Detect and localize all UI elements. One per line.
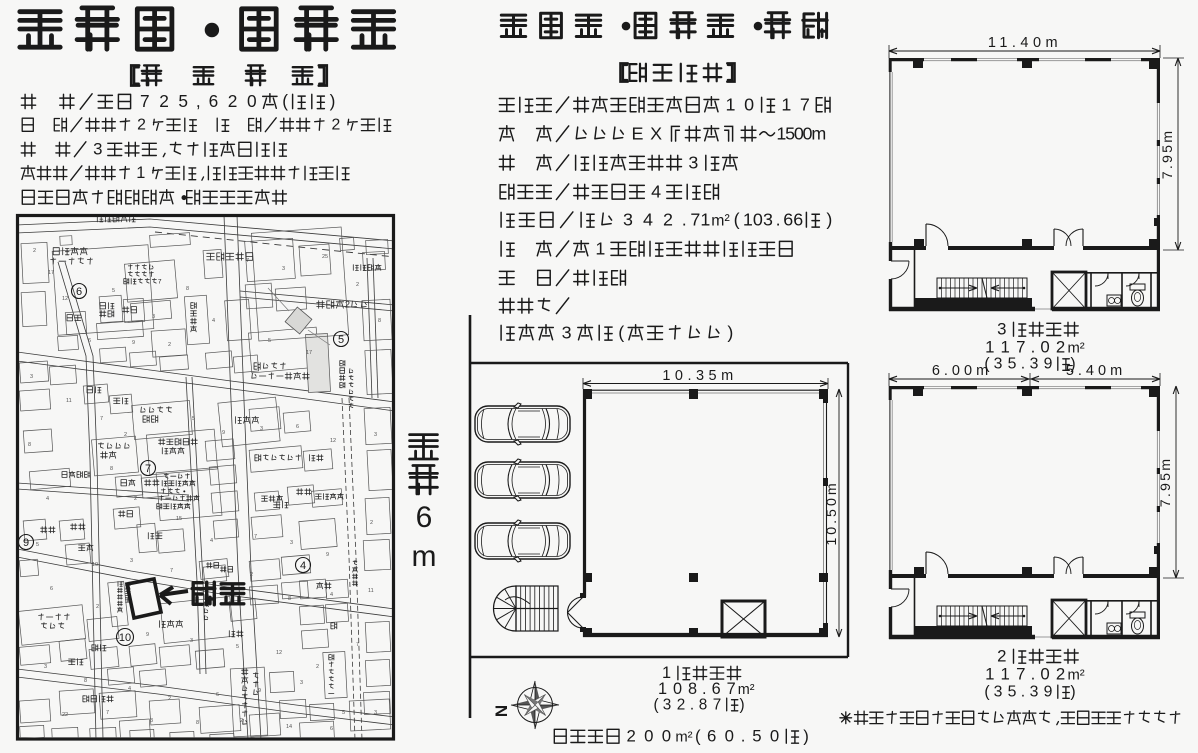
svg-text:4: 4: [210, 538, 213, 544]
svg-text:9: 9: [222, 430, 225, 436]
svg-text:6: 6: [216, 692, 219, 698]
svg-text:3: 3: [997, 320, 1006, 339]
svg-text:.: .: [1021, 684, 1025, 701]
svg-text:1: 1: [700, 209, 710, 229]
svg-text:4: 4: [212, 318, 215, 324]
svg-text:.: .: [776, 209, 781, 229]
svg-text:11: 11: [368, 588, 374, 594]
svg-text:14: 14: [286, 724, 292, 730]
svg-text:(: (: [695, 727, 701, 746]
svg-text:2: 2: [1056, 665, 1065, 684]
svg-text:6: 6: [50, 586, 53, 592]
svg-text:1: 1: [595, 238, 605, 258]
svg-text:): ): [826, 209, 832, 229]
svg-text:9: 9: [23, 537, 29, 549]
svg-text:3: 3: [994, 356, 1003, 373]
svg-text:1: 1: [985, 338, 994, 357]
svg-text:1: 1: [1001, 338, 1010, 357]
svg-text:2: 2: [250, 572, 253, 578]
svg-text:1: 1: [136, 164, 145, 182]
svg-text:2: 2: [228, 91, 238, 111]
svg-text:4: 4: [300, 560, 306, 572]
svg-text:2: 2: [997, 647, 1006, 666]
svg-text:(: (: [734, 209, 740, 229]
svg-text:22: 22: [62, 712, 68, 718]
svg-text:9: 9: [1044, 356, 1053, 373]
svg-text:8: 8: [378, 318, 381, 324]
svg-text:3: 3: [282, 266, 285, 272]
svg-text:2: 2: [137, 117, 146, 134]
svg-text:6: 6: [707, 727, 716, 746]
svg-text:5: 5: [178, 91, 188, 111]
svg-text:6: 6: [416, 501, 433, 534]
svg-text:3: 3: [663, 696, 672, 713]
svg-text:1: 1: [726, 94, 736, 114]
svg-text:5.40m: 5.40m: [1066, 363, 1126, 379]
svg-text:8: 8: [28, 442, 31, 448]
svg-text:2: 2: [356, 282, 359, 288]
svg-text:.: .: [690, 696, 694, 713]
svg-text:): ): [739, 696, 744, 713]
svg-text:8: 8: [186, 286, 189, 292]
svg-text:6: 6: [793, 209, 803, 229]
svg-text:17: 17: [306, 350, 312, 356]
svg-text:6: 6: [330, 726, 333, 732]
svg-text:7: 7: [800, 94, 810, 114]
svg-text:2: 2: [663, 209, 673, 229]
svg-text:7: 7: [106, 710, 109, 716]
svg-text:.: .: [682, 209, 687, 229]
svg-text:(: (: [984, 684, 990, 701]
svg-text:0: 0: [662, 727, 671, 746]
svg-text:2: 2: [96, 604, 99, 610]
svg-text:7: 7: [145, 463, 151, 475]
svg-text:11: 11: [66, 398, 72, 404]
svg-text:8: 8: [288, 596, 291, 602]
svg-text:3: 3: [150, 718, 153, 724]
svg-text:10: 10: [92, 562, 98, 568]
svg-text:4: 4: [128, 686, 131, 692]
svg-text:m²: m²: [675, 730, 692, 746]
svg-text:0: 0: [770, 727, 779, 746]
svg-text:12: 12: [330, 438, 336, 444]
svg-text:2: 2: [33, 248, 36, 254]
svg-text:1: 1: [781, 94, 791, 114]
svg-text:2: 2: [1056, 338, 1065, 357]
svg-text:6: 6: [209, 91, 219, 111]
svg-text:.: .: [1021, 356, 1025, 373]
svg-text:6.00m: 6.00m: [932, 363, 992, 379]
svg-text:6: 6: [88, 338, 91, 344]
svg-text:3: 3: [152, 314, 155, 320]
svg-text:0: 0: [1040, 665, 1049, 684]
svg-text:7: 7: [158, 278, 162, 285]
svg-text:3: 3: [300, 680, 303, 686]
svg-text:3: 3: [260, 426, 263, 432]
svg-text:2: 2: [345, 299, 350, 309]
svg-text:1: 1: [985, 665, 994, 684]
svg-text:3: 3: [1030, 356, 1039, 373]
svg-text:8: 8: [699, 696, 708, 713]
svg-text:0: 0: [753, 209, 763, 229]
svg-text:.: .: [741, 727, 746, 746]
svg-text:8: 8: [196, 720, 199, 726]
svg-text:3: 3: [290, 540, 293, 546]
svg-text:3: 3: [688, 152, 698, 172]
svg-text:0: 0: [1040, 338, 1049, 357]
svg-text:5: 5: [192, 416, 195, 422]
svg-text:8: 8: [84, 678, 87, 684]
svg-text:6: 6: [783, 209, 793, 229]
svg-text:17: 17: [48, 270, 54, 276]
svg-text:3: 3: [623, 209, 633, 229]
svg-text:7: 7: [100, 416, 103, 422]
svg-text:3: 3: [130, 558, 133, 564]
svg-text:2: 2: [316, 664, 319, 670]
svg-text:11.40m: 11.40m: [988, 35, 1062, 51]
svg-text:7: 7: [356, 642, 359, 648]
svg-text:12: 12: [276, 650, 282, 656]
svg-text:8: 8: [110, 466, 113, 472]
svg-text:5: 5: [342, 710, 345, 716]
svg-text:2: 2: [168, 696, 171, 702]
svg-text:3: 3: [763, 209, 773, 229]
svg-text:3: 3: [562, 322, 572, 342]
svg-text:3: 3: [30, 374, 33, 380]
svg-text:9: 9: [132, 340, 135, 346]
svg-text:m: m: [412, 540, 437, 573]
svg-text:5: 5: [268, 338, 271, 344]
svg-text:): ): [727, 322, 733, 342]
svg-text:7: 7: [1016, 338, 1025, 357]
svg-text:15: 15: [176, 516, 182, 522]
svg-text:10.50m: 10.50m: [824, 480, 840, 545]
svg-text:7.95m: 7.95m: [1158, 457, 1174, 507]
svg-text:5: 5: [752, 727, 761, 746]
svg-text:0: 0: [744, 94, 754, 114]
svg-text:2: 2: [159, 91, 169, 111]
svg-text:2: 2: [134, 496, 137, 502]
svg-text:m: m: [811, 123, 826, 143]
svg-text:12: 12: [62, 296, 68, 302]
svg-text:4: 4: [643, 209, 653, 229]
svg-text:3: 3: [1030, 684, 1039, 701]
svg-text:0: 0: [247, 91, 257, 111]
svg-text:7: 7: [713, 696, 722, 713]
svg-text:5: 5: [1008, 356, 1017, 373]
svg-text:2: 2: [332, 117, 341, 134]
svg-text:3: 3: [994, 684, 1003, 701]
svg-text:5: 5: [236, 644, 239, 650]
svg-text:6: 6: [296, 424, 299, 430]
svg-text:4: 4: [46, 496, 49, 502]
svg-text:E: E: [632, 123, 644, 143]
svg-text:2: 2: [627, 727, 636, 746]
svg-text:.: .: [1031, 665, 1036, 684]
svg-text:2: 2: [677, 696, 686, 713]
svg-text:3: 3: [93, 140, 102, 159]
svg-text:6: 6: [76, 286, 82, 298]
svg-text:2: 2: [168, 342, 171, 348]
svg-text:(: (: [653, 696, 658, 713]
svg-text:10: 10: [119, 632, 131, 644]
svg-text:7: 7: [727, 680, 736, 698]
svg-text:): ): [330, 91, 336, 111]
svg-text:7: 7: [254, 534, 257, 540]
svg-text:3: 3: [190, 638, 193, 644]
svg-text:7.95m: 7.95m: [1160, 129, 1176, 179]
svg-text:m²: m²: [1067, 668, 1084, 684]
svg-text:1: 1: [743, 209, 753, 229]
svg-text:25: 25: [322, 254, 328, 260]
svg-text:9: 9: [146, 632, 149, 638]
svg-text:3: 3: [374, 432, 377, 438]
svg-text:(: (: [282, 91, 288, 111]
svg-text:5: 5: [112, 288, 115, 294]
svg-text:.: .: [1031, 338, 1036, 357]
svg-text:): ): [1070, 684, 1075, 701]
svg-text:m²: m²: [711, 212, 729, 229]
svg-text:4: 4: [651, 181, 661, 201]
svg-text:5: 5: [338, 334, 344, 346]
svg-text:10.35m: 10.35m: [662, 368, 737, 384]
svg-text:N: N: [492, 705, 511, 717]
svg-text:1: 1: [1001, 665, 1010, 684]
svg-text:7: 7: [140, 91, 150, 111]
svg-text:5: 5: [36, 542, 39, 548]
svg-text:0: 0: [725, 727, 734, 746]
svg-text:9: 9: [1044, 684, 1053, 701]
svg-text:2: 2: [370, 520, 373, 526]
svg-text:9: 9: [258, 688, 261, 694]
svg-text:,: ,: [196, 91, 201, 111]
svg-text:3: 3: [44, 664, 47, 670]
svg-text:5: 5: [1008, 684, 1017, 701]
svg-text:7: 7: [690, 209, 700, 229]
svg-text:0: 0: [644, 727, 653, 746]
svg-text:3: 3: [374, 710, 377, 716]
svg-text:X: X: [650, 123, 662, 143]
svg-text:2: 2: [124, 432, 127, 438]
svg-text:): ): [803, 727, 809, 746]
svg-text:7: 7: [170, 568, 173, 574]
svg-text:m²: m²: [1067, 341, 1084, 357]
svg-text:4: 4: [330, 592, 333, 598]
svg-text:7: 7: [1016, 665, 1025, 684]
svg-text:(: (: [618, 322, 624, 342]
svg-text:9: 9: [326, 552, 329, 558]
